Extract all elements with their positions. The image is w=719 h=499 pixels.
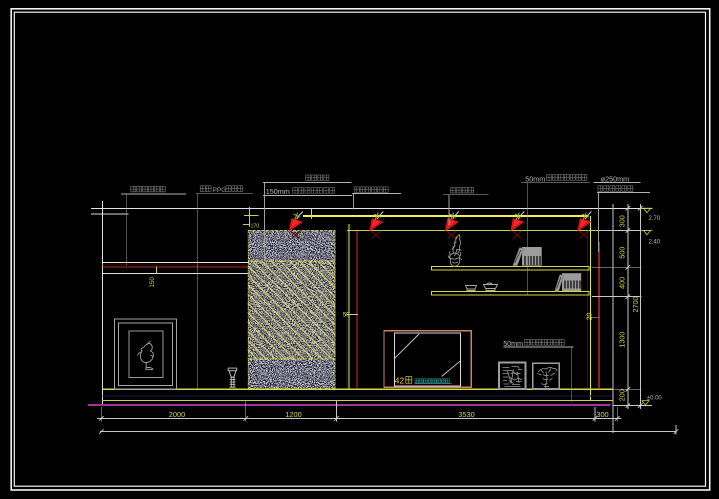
svg-text:400: 400 (617, 277, 626, 289)
svg-text:20: 20 (586, 313, 593, 321)
svg-text:200: 200 (617, 389, 626, 401)
svg-text:150mm: 150mm (266, 187, 290, 196)
svg-text:3530: 3530 (458, 410, 474, 419)
svg-text:2.40: 2.40 (649, 240, 661, 246)
svg-text:500: 500 (617, 247, 626, 259)
svg-text:1300: 1300 (617, 332, 626, 348)
svg-text:2700: 2700 (631, 297, 640, 313)
svg-text:300: 300 (596, 410, 608, 419)
svg-text:PPG: PPG (213, 187, 227, 194)
svg-text:170: 170 (251, 223, 260, 229)
svg-text:±0.00: ±0.00 (647, 395, 663, 401)
svg-text:300: 300 (617, 215, 626, 227)
svg-text:2.70: 2.70 (649, 216, 661, 222)
svg-text:42: 42 (395, 375, 405, 385)
svg-text:ø250mm: ø250mm (601, 174, 629, 183)
svg-text:1200: 1200 (285, 410, 301, 419)
svg-text:50: 50 (343, 312, 350, 318)
svg-text:2000: 2000 (169, 410, 185, 419)
svg-text:50mm: 50mm (525, 174, 545, 183)
svg-text:150: 150 (149, 277, 156, 288)
